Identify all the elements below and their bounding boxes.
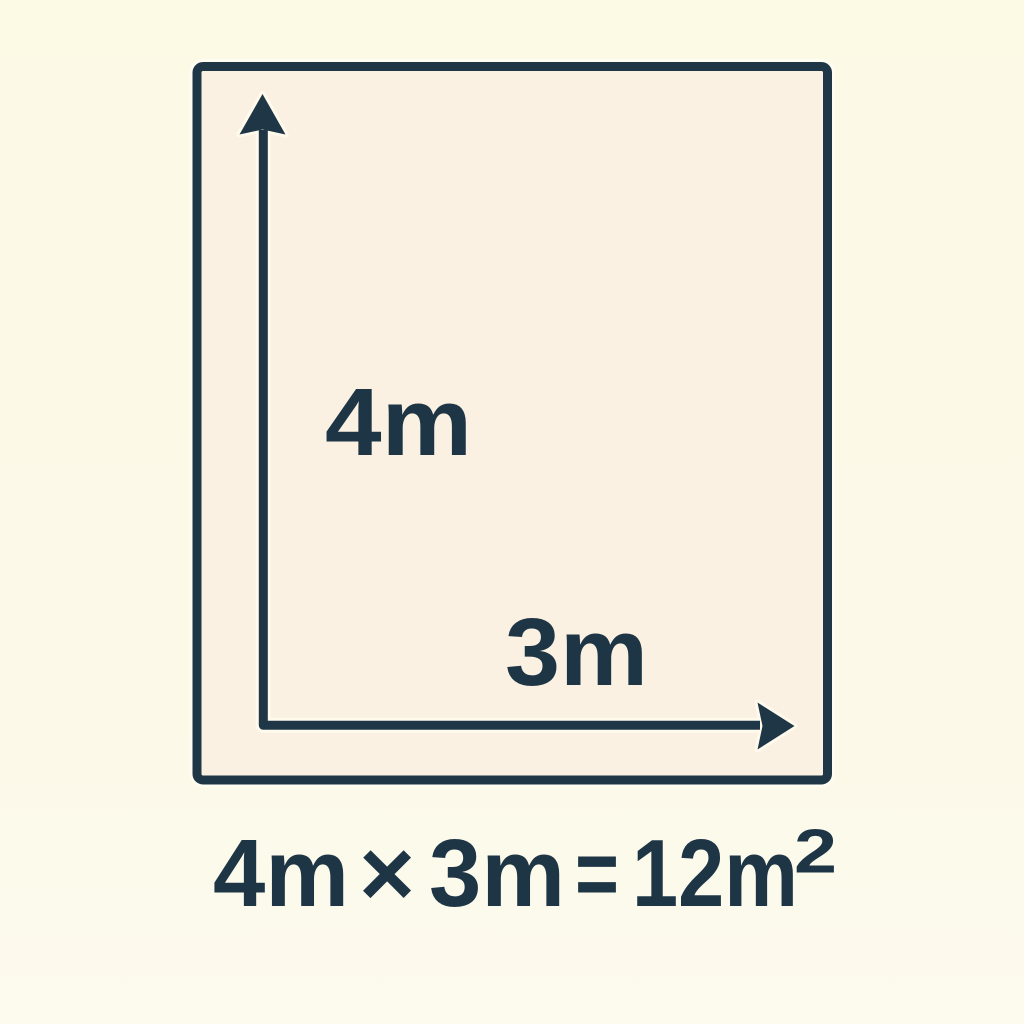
svg-text:×: ×: [359, 820, 415, 927]
svg-text:4m: 4m: [213, 820, 349, 927]
svg-text:4m: 4m: [325, 369, 472, 476]
svg-text:3m: 3m: [429, 820, 565, 927]
svg-text:=: =: [575, 820, 619, 927]
svg-text:12m: 12m: [632, 820, 798, 927]
svg-text:2: 2: [794, 818, 837, 887]
svg-text:3m: 3m: [505, 599, 648, 706]
